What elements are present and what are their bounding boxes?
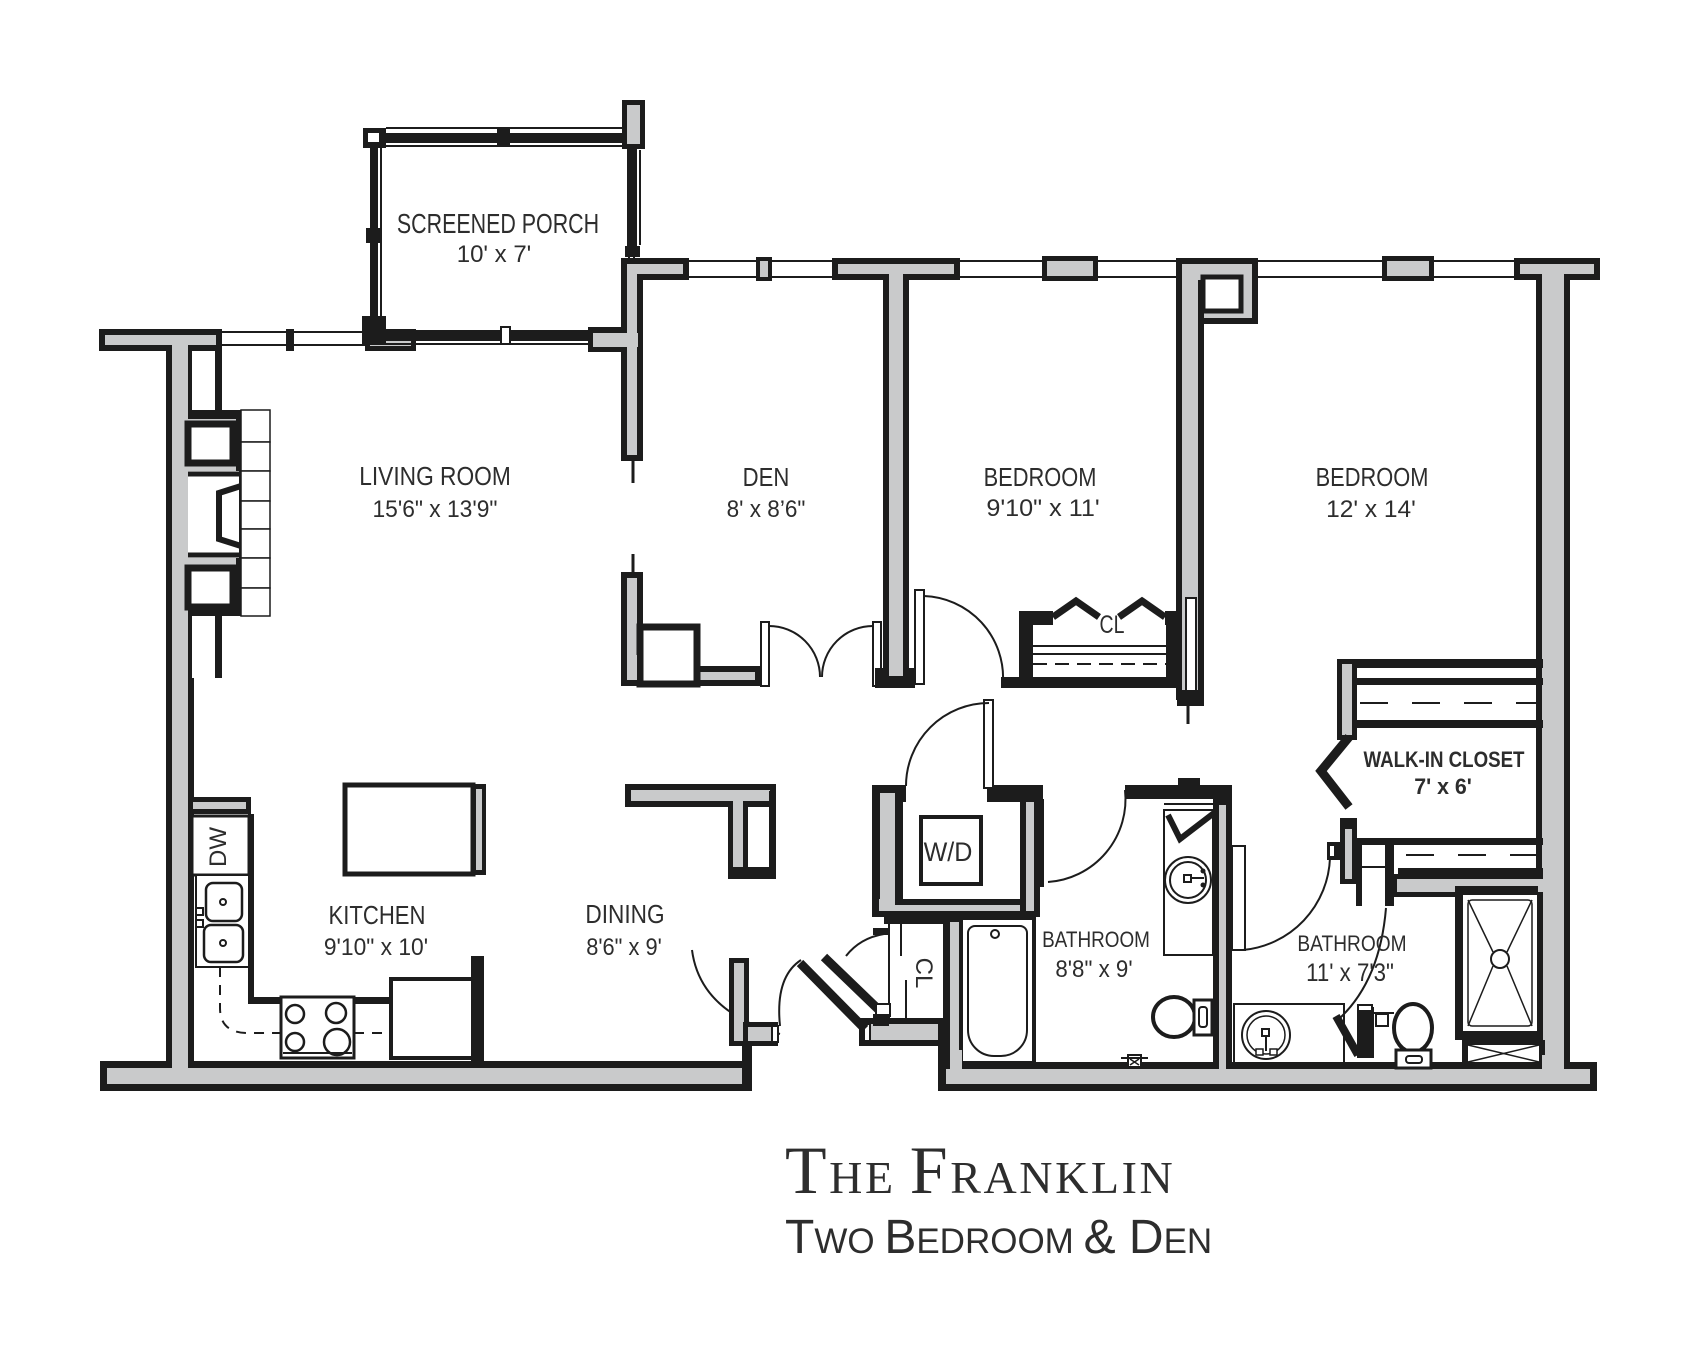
svg-text:8' x 8’6": 8' x 8’6" [727,495,806,522]
svg-text:WALK-IN CLOSET: WALK-IN CLOSET [1364,749,1525,773]
svg-text:KITCHEN: KITCHEN [329,901,426,930]
svg-text:9'10" x 10': 9'10" x 10' [324,933,428,960]
svg-text:DINING: DINING [585,901,664,930]
svg-text:7' x 6': 7' x 6' [1414,774,1472,799]
svg-text:W/D: W/D [924,836,973,867]
svg-text:BATHROOM: BATHROOM [1297,932,1406,957]
svg-text:BEDROOM: BEDROOM [1316,463,1429,492]
svg-text:11' x 7'3": 11' x 7'3" [1306,960,1394,987]
svg-text:BEDROOM: BEDROOM [984,463,1097,492]
svg-text:DW: DW [205,827,232,867]
svg-text:15'6" x 13'9": 15'6" x 13'9" [373,495,498,522]
svg-text:9'10" x 11': 9'10" x 11' [986,496,1099,522]
svg-text:BATHROOM: BATHROOM [1042,928,1150,953]
svg-text:10' x 7': 10' x 7' [457,241,532,268]
svg-text:SCREENED PORCH: SCREENED PORCH [397,208,599,239]
svg-text:8'6" x 9': 8'6" x 9' [586,933,662,960]
svg-text:LIVING ROOM: LIVING ROOM [359,463,511,492]
svg-text:12' x 14': 12' x 14' [1326,496,1416,523]
svg-text:DEN: DEN [743,463,790,492]
svg-text:8'8" x 9': 8'8" x 9' [1055,955,1132,982]
svg-text:CL: CL [1100,611,1125,639]
svg-text:CL: CL [910,958,937,989]
